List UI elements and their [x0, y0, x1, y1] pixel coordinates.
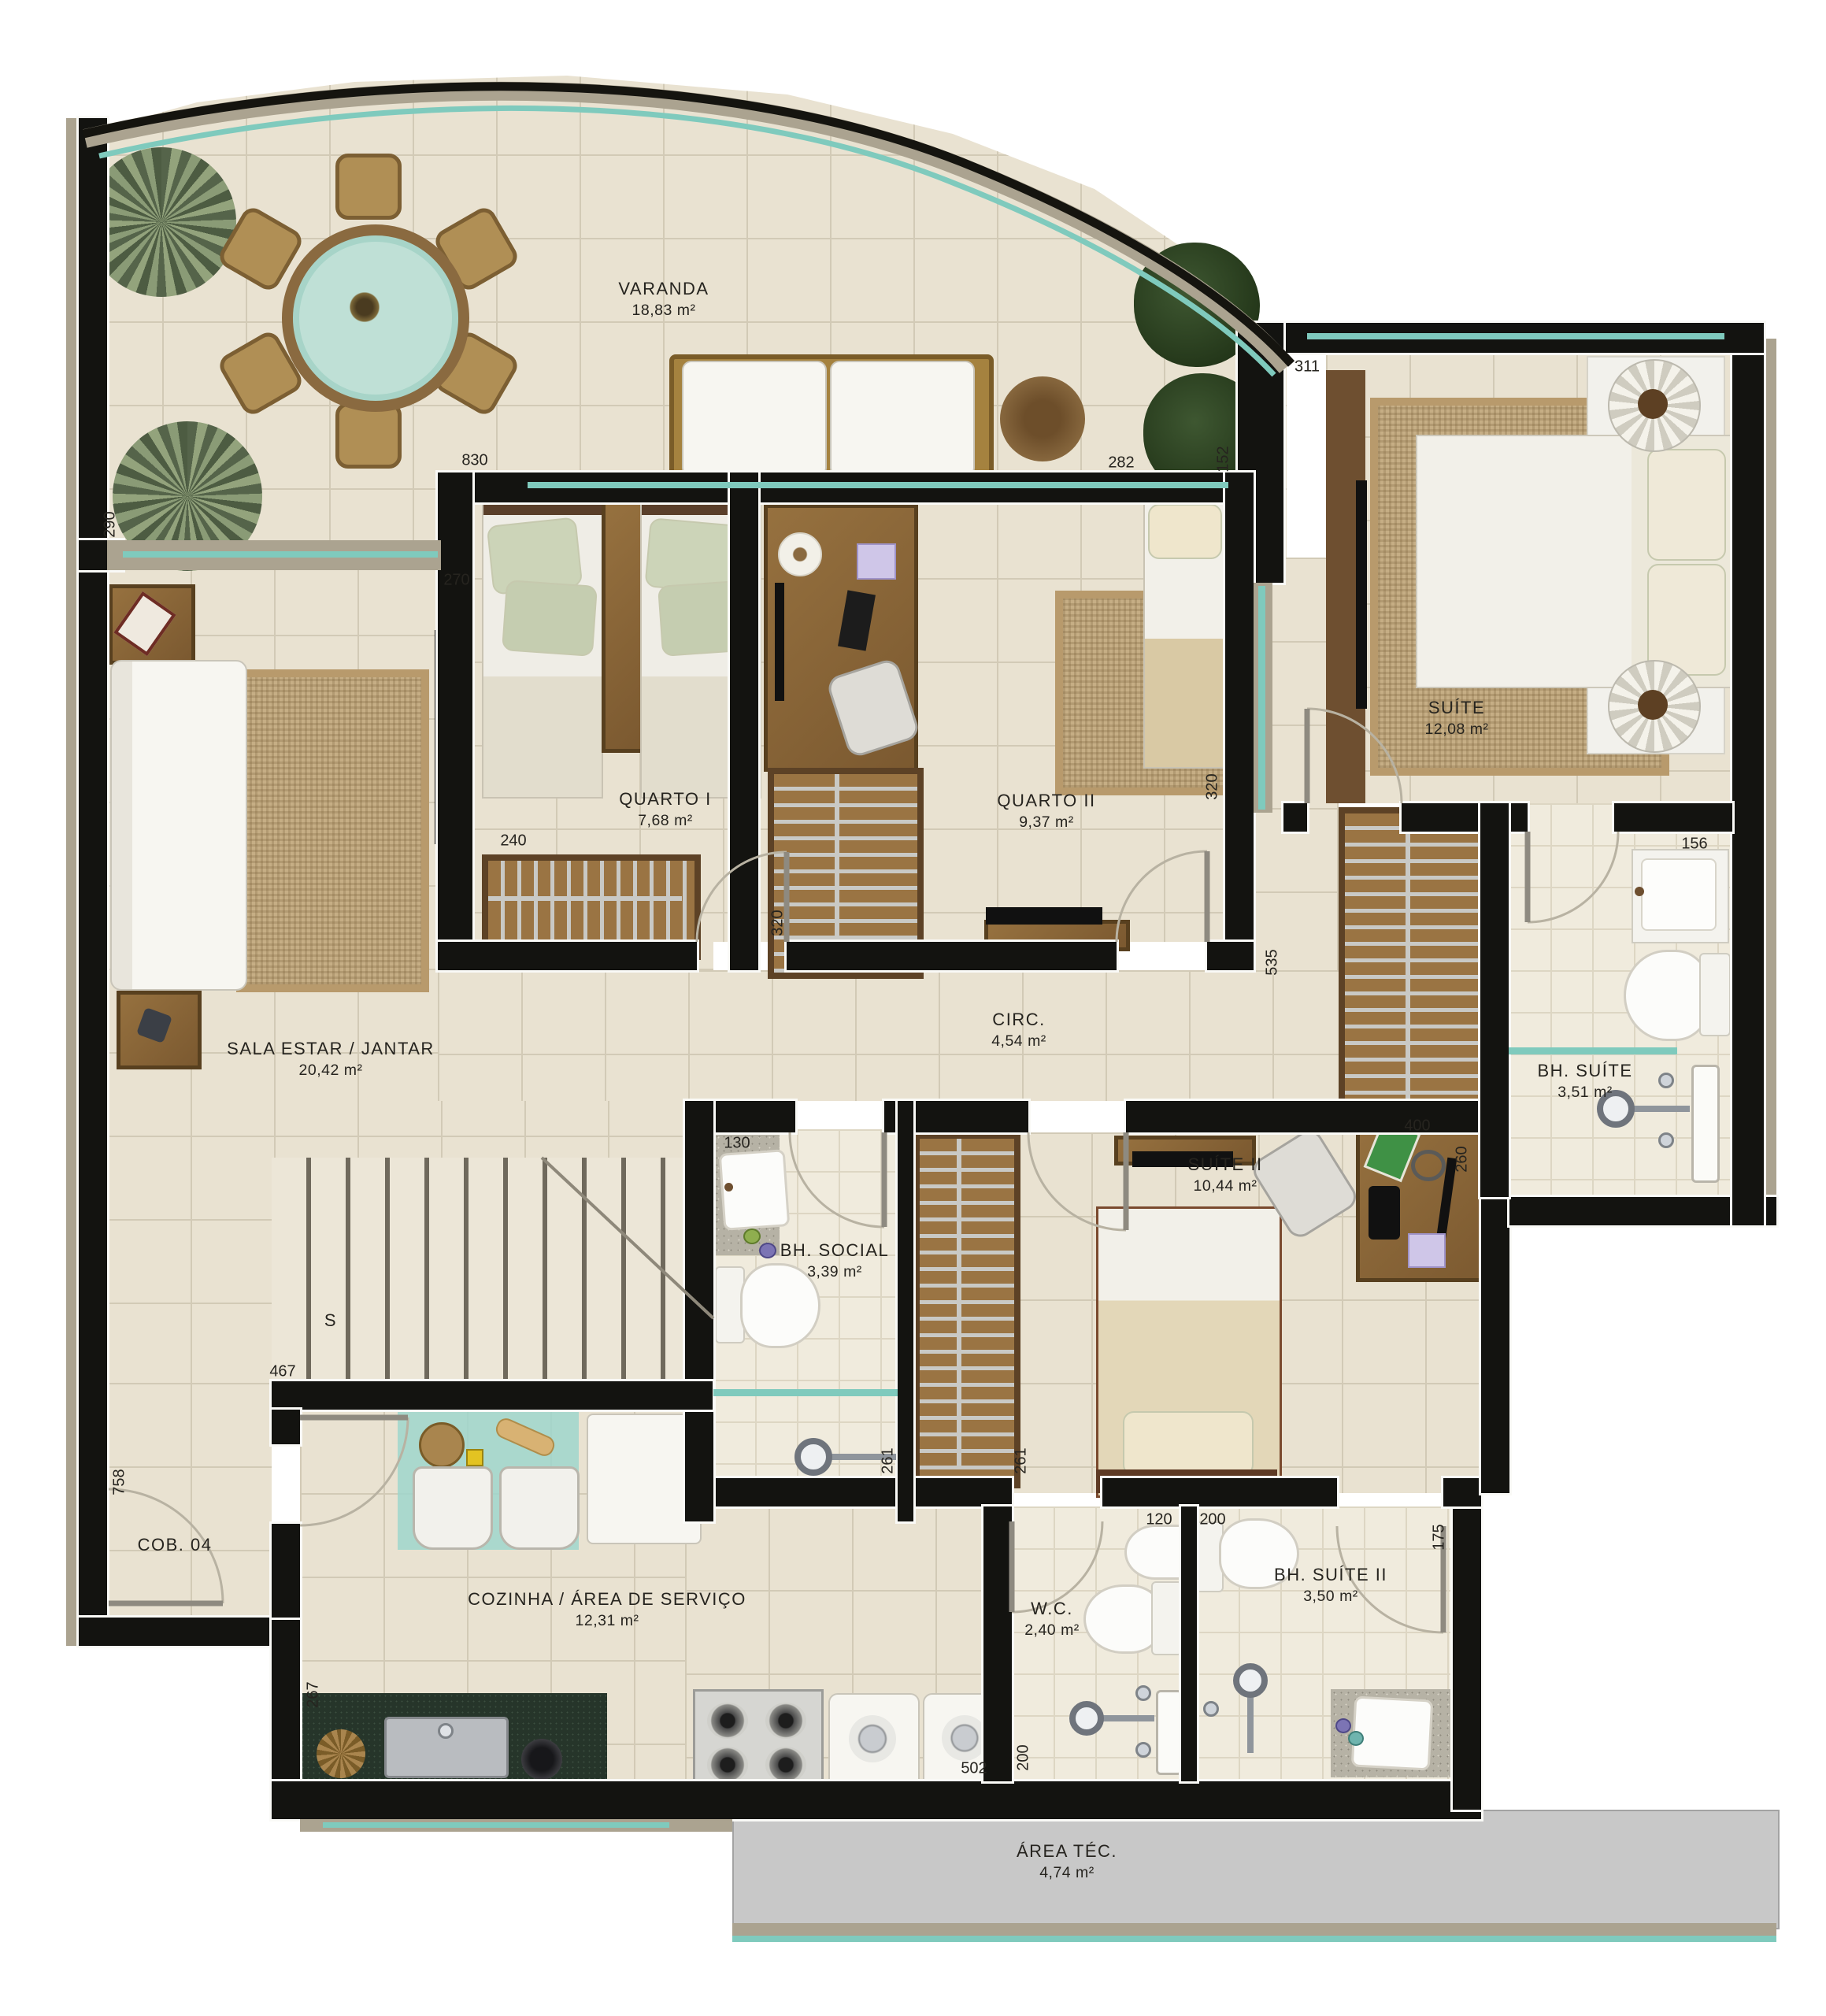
- bh-suite-shower-knob-top: [1658, 1073, 1674, 1088]
- suite-side-table-bottom-center: [1638, 690, 1668, 720]
- wall-lower-band-a: [685, 1478, 1012, 1506]
- wicker-sofa-cushion-right: [830, 361, 975, 477]
- dim-260: 260: [1454, 1146, 1472, 1172]
- bh-suite-shower-door: [1691, 1065, 1720, 1183]
- dim-175: 175: [1431, 1524, 1449, 1550]
- room-label-circ: CIRC. 4,54 m²: [991, 1010, 1046, 1051]
- dim-311: 311: [1294, 358, 1320, 376]
- wall-lower-band-b: [1102, 1478, 1337, 1506]
- suite-side-table-top-center: [1638, 389, 1668, 419]
- wc-shower-knob-bottom: [1135, 1742, 1151, 1758]
- quarto2-desk-monitor: [775, 583, 784, 701]
- wall-quarto1-nook: [730, 472, 758, 970]
- stove-burner-2: [765, 1703, 806, 1739]
- bh-suite-sink: [1641, 858, 1717, 931]
- quarto2-name: QUARTO II: [997, 791, 1095, 811]
- quarto2-bed-pillow: [1148, 504, 1222, 559]
- stairs-s-text: S: [324, 1310, 337, 1331]
- kitchen-chair-right: [499, 1466, 580, 1550]
- dim-320-quarto2: 320: [1204, 773, 1222, 799]
- room-label-quarto1: QUARTO I 7,68 m²: [619, 789, 712, 830]
- wall-stairs-kitchen: [272, 1381, 713, 1410]
- wall-wc-left: [983, 1506, 1012, 1781]
- wc-area: 2,40 m²: [1024, 1621, 1080, 1640]
- wc-shower-knob-top: [1135, 1685, 1151, 1701]
- wall-cob04-kitchen-a: [272, 1410, 300, 1444]
- bh-suite2-name: BH. SUÍTE II: [1274, 1565, 1387, 1585]
- suite2-desk-pc-tower: [1369, 1186, 1400, 1240]
- wicker-sofa-cushion-left: [682, 361, 827, 477]
- suite-area: 12,08 m²: [1425, 721, 1489, 739]
- stairs-label: S: [324, 1310, 337, 1331]
- wall-cob04-bottom: [79, 1618, 285, 1646]
- quarto2-desk-mousepad: [857, 543, 896, 580]
- kitchen-window-glass: [323, 1822, 669, 1828]
- bh-suite-faucet: [1635, 887, 1644, 896]
- wall-cob04-kitchen-b: [272, 1524, 300, 1618]
- room-label-area-tec: ÁREA TÉC. 4,74 m²: [1017, 1841, 1117, 1882]
- wall-bh-social-right: [898, 1101, 913, 1521]
- suite-bed-pillow-bottom: [1647, 564, 1726, 676]
- room-label-bh-suite2: BH. SUÍTE II 3,50 m²: [1274, 1565, 1387, 1606]
- wall-lower-band-c: [1443, 1478, 1481, 1506]
- bh-social-name: BH. SOCIAL: [780, 1240, 889, 1261]
- circ-name: CIRC.: [991, 1010, 1046, 1030]
- quarto1-bed-left-pillow2: [502, 580, 598, 657]
- bh-suite-area: 3,51 m²: [1537, 1084, 1632, 1102]
- wc-shower-door: [1156, 1690, 1183, 1775]
- varanda-area: 18,83 m²: [618, 302, 709, 320]
- wall-suite-bottom-a: [1283, 803, 1307, 832]
- room-label-varanda: VARANDA 18,83 m²: [618, 279, 709, 320]
- varanda-name: VARANDA: [618, 279, 709, 299]
- wall-bh-suite-left: [1480, 803, 1509, 1197]
- wall-quarto2-right: [1225, 472, 1254, 970]
- dining-chair-s: [335, 402, 402, 469]
- wall-suite2-right: [1481, 1197, 1509, 1493]
- dim-267: 267: [305, 1681, 323, 1707]
- dim-467: 467: [269, 1363, 295, 1381]
- area-tec-name: ÁREA TÉC.: [1017, 1841, 1117, 1862]
- bh-suite2-toiletry-teal: [1348, 1731, 1364, 1746]
- kitchen-sink-faucet: [438, 1723, 454, 1739]
- wall-circ-bottom-c: [1126, 1101, 1504, 1132]
- kitchen-stove: [693, 1689, 824, 1795]
- bh-suite-shower-glass: [1509, 1047, 1677, 1054]
- suite2-closet: [913, 1132, 1020, 1488]
- bh-social-toiletry-purple: [759, 1243, 776, 1258]
- dining-chair-n: [335, 154, 402, 220]
- bh-suite2-shower-knob: [1203, 1701, 1219, 1717]
- dim-290: 290: [102, 511, 120, 537]
- dim-261-left: 261: [880, 1447, 898, 1473]
- quarto1-area: 7,68 m²: [619, 812, 712, 830]
- sala-sofa: [110, 660, 247, 991]
- unit-label-cob04: COB. 04: [138, 1535, 213, 1555]
- washer-right-door: [942, 1715, 987, 1761]
- kitchen-chair-left: [413, 1466, 493, 1550]
- wall-bh-social-left: [685, 1101, 713, 1521]
- wall-bh-suite-top-b: [1614, 803, 1732, 832]
- wc-sink: [1124, 1525, 1186, 1580]
- wall-bh-suite2-right-exterior: [1453, 1496, 1481, 1810]
- dim-282: 282: [1108, 454, 1134, 472]
- bh-social-shower-glass: [713, 1389, 898, 1396]
- dining-table-centerpiece: [348, 291, 381, 324]
- wall-circ-top-b: [787, 942, 1117, 970]
- wc-toilet-bowl: [1083, 1584, 1162, 1654]
- bh-suite2-area: 3,50 m²: [1274, 1588, 1387, 1606]
- wall-quarto1-left: [438, 472, 472, 970]
- quartos-top-window-glass: [528, 482, 1228, 488]
- quarto1-nightstand: [602, 501, 646, 753]
- bh-social-area: 3,39 m²: [780, 1263, 889, 1281]
- dim-535: 535: [1264, 949, 1282, 975]
- bh-social-toiletry-green: [743, 1228, 761, 1244]
- suite2-desk-headset: [1411, 1150, 1446, 1181]
- stove-burner-4: [765, 1747, 806, 1783]
- wall-right-exterior: [1732, 323, 1764, 1225]
- stove-burner-1: [707, 1703, 748, 1739]
- dim-152: 152: [1215, 446, 1233, 472]
- stairs-floor: [272, 1158, 713, 1383]
- palm-plant-top: [87, 147, 236, 297]
- room-label-suite2: SUÍTE II 10,44 m²: [1187, 1154, 1262, 1195]
- wall-left-exterior: [79, 118, 107, 1646]
- area-tec-area: 4,74 m²: [1017, 1864, 1117, 1882]
- quarto2-closet-pole: [835, 774, 839, 960]
- dim-200-wc: 200: [1015, 1744, 1033, 1770]
- quarto2-desk-lamp: [778, 532, 822, 576]
- quarto1-name: QUARTO I: [619, 789, 712, 810]
- washer-left-door: [849, 1715, 896, 1762]
- bh-suite-name: BH. SUÍTE: [1537, 1061, 1632, 1081]
- sala-rug: [236, 669, 429, 992]
- area-tec-glass-line: [732, 1936, 1776, 1942]
- dim-156: 156: [1681, 836, 1707, 854]
- dim-400: 400: [1404, 1117, 1430, 1136]
- suite2-area: 10,44 m²: [1187, 1177, 1262, 1195]
- room-label-bh-social: BH. SOCIAL 3,39 m²: [780, 1240, 889, 1281]
- sala-name: SALA ESTAR / JANTAR: [227, 1039, 435, 1059]
- room-label-sala: SALA ESTAR / JANTAR 20,42 m²: [227, 1039, 435, 1080]
- stove-burner-3: [707, 1747, 748, 1783]
- circ-area: 4,54 m²: [991, 1032, 1046, 1051]
- kitchen-butter-dish: [466, 1449, 483, 1466]
- cozinha-area: 12,31 m²: [468, 1612, 746, 1630]
- room-label-bh-suite: BH. SUÍTE 3,51 m²: [1537, 1061, 1632, 1102]
- area-tec-sill: [732, 1923, 1776, 1936]
- dim-758: 758: [111, 1469, 129, 1495]
- kitchen-cutting-board: [419, 1422, 465, 1468]
- area-tec-slab: [732, 1810, 1780, 1929]
- cozinha-name: COZINHA / ÁREA DE SERVIÇO: [468, 1589, 746, 1610]
- varanda-coffee-table: [1000, 376, 1085, 461]
- suite-top-window-glass: [1307, 333, 1724, 339]
- dim-240: 240: [500, 832, 526, 850]
- corridor-window-glass: [1258, 586, 1265, 810]
- sala-area: 20,42 m²: [227, 1062, 435, 1080]
- floor-plan-canvas: VARANDA 18,83 m² QUARTO I 7,68 m² QUARTO…: [0, 0, 1826, 2016]
- dim-320-quarto1: 320: [769, 910, 787, 936]
- wall-suite-bottom-b: [1402, 803, 1480, 832]
- bh-social-faucet: [724, 1183, 733, 1191]
- dim-261-right: 261: [1013, 1447, 1031, 1473]
- suite-closet: [1339, 807, 1493, 1132]
- kitchen-pot: [521, 1739, 562, 1780]
- wall-circ-top-c: [1207, 942, 1254, 970]
- quarto2-tv: [986, 907, 1102, 925]
- suite-closet-pole: [1406, 813, 1410, 1113]
- bh-suite2-toiletry-purple: [1335, 1718, 1351, 1733]
- sala-varanda-window-glass: [123, 551, 438, 558]
- dim-830: 830: [461, 452, 487, 470]
- room-label-suite: SUÍTE 12,08 m²: [1425, 698, 1489, 739]
- suite-bed-pillow-top: [1647, 449, 1726, 561]
- suite2-desk-mousepad: [1408, 1233, 1446, 1268]
- sill-right-exterior: [1764, 339, 1776, 1225]
- bh-suite-shower-knob-bottom: [1658, 1132, 1674, 1148]
- room-label-quarto2: QUARTO II 9,37 m²: [997, 791, 1095, 832]
- dim-120: 120: [1146, 1511, 1172, 1529]
- suite-name: SUÍTE: [1425, 698, 1489, 718]
- wall-bottom-exterior: [272, 1781, 1481, 1819]
- wc-name: W.C.: [1024, 1599, 1080, 1619]
- cob04-hall-floor: [107, 1383, 272, 1618]
- suite2-closet-pole: [957, 1139, 961, 1469]
- room-label-cozinha: COZINHA / ÁREA DE SERVIÇO 12,31 m²: [468, 1589, 746, 1630]
- quarto1-wardrobe-rail: [488, 896, 682, 901]
- wall-wc-bh-suite2-divider: [1181, 1506, 1197, 1781]
- cob04-text: COB. 04: [138, 1535, 213, 1555]
- suite2-name: SUÍTE II: [1187, 1154, 1262, 1175]
- dim-502: 502: [961, 1760, 987, 1778]
- wc-toilet-tank: [1151, 1581, 1183, 1655]
- bh-suite-toilet-tank: [1699, 953, 1731, 1036]
- bh-suite2-sink: [1351, 1695, 1434, 1770]
- quarto2-area: 9,37 m²: [997, 813, 1095, 832]
- dim-130: 130: [724, 1135, 750, 1153]
- bh-suite-toilet-bowl: [1624, 950, 1710, 1041]
- dim-270: 270: [443, 572, 469, 590]
- sill-left-exterior: [66, 118, 79, 1646]
- kitchen-basket: [317, 1729, 365, 1778]
- room-label-wc: W.C. 2,40 m²: [1024, 1599, 1080, 1640]
- wall-circ-top-a: [438, 942, 697, 970]
- dim-200-bh-suite2: 200: [1199, 1511, 1225, 1529]
- suite2-bed-pillow: [1123, 1411, 1254, 1476]
- suite-tv: [1356, 480, 1367, 709]
